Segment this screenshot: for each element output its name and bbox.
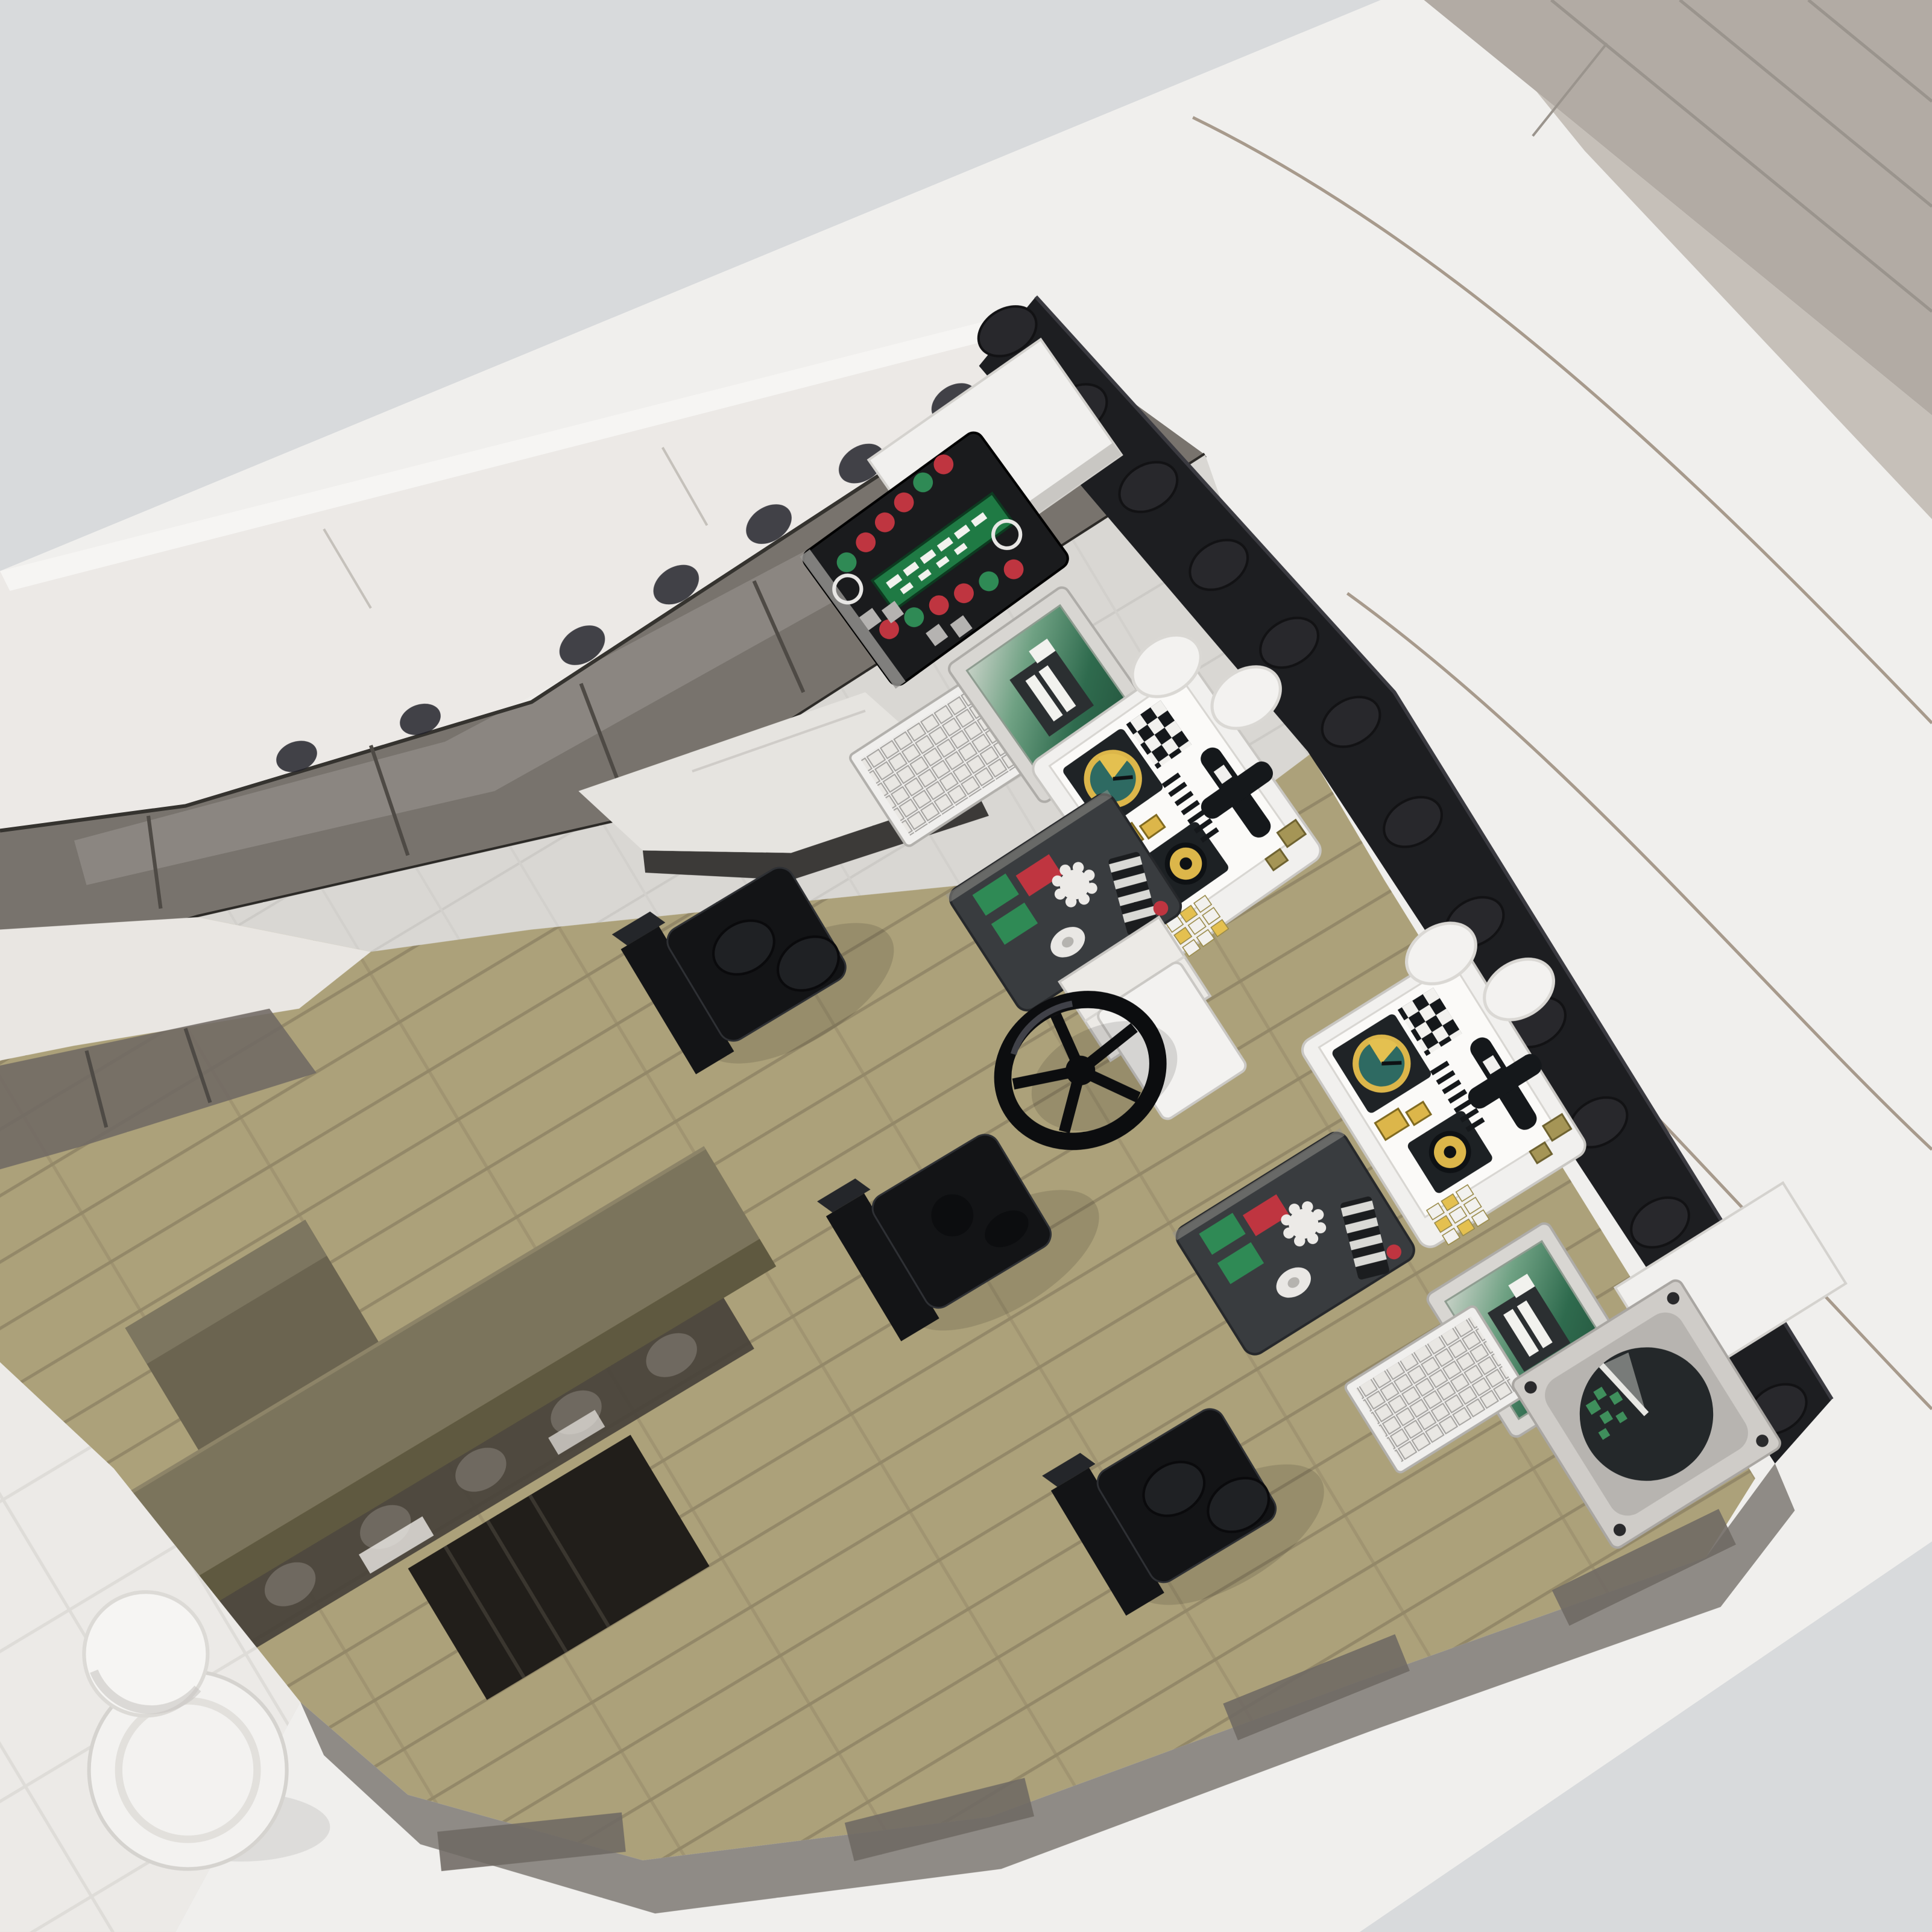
mini-keypad xyxy=(1166,895,1228,956)
indicator-light-panel xyxy=(800,429,1072,689)
gauge-needle xyxy=(1381,1055,1401,1072)
ladder-switches xyxy=(1162,772,1219,842)
red-switch xyxy=(1016,854,1062,896)
debris-white xyxy=(548,1410,605,1455)
crt-frame xyxy=(1425,1220,1635,1439)
gauge-needle xyxy=(1113,769,1133,787)
lego-bridge-render xyxy=(0,0,1932,1932)
wheel-spokes xyxy=(995,988,1161,1143)
keyboard-base xyxy=(1344,1305,1529,1474)
gray-buttons xyxy=(859,567,973,678)
ships-wheel xyxy=(980,968,1196,1166)
stud-behind-glass xyxy=(352,1496,419,1558)
stud xyxy=(552,617,612,674)
stud xyxy=(1740,1374,1816,1444)
windscreen-top-band xyxy=(0,312,1065,831)
bow-deck-group xyxy=(0,1362,330,1932)
plank-seams xyxy=(0,754,1755,1860)
black-stud-wall-group xyxy=(868,296,1846,1463)
roof-step-lower xyxy=(1536,92,1932,519)
seat-stud xyxy=(1134,1451,1214,1527)
chair-backrest xyxy=(621,926,734,1074)
gear-icon xyxy=(1272,1192,1336,1255)
khaki-button xyxy=(1530,1143,1552,1163)
box-seam xyxy=(1085,956,1184,1021)
radar-screen xyxy=(1555,1322,1738,1506)
oval-stud xyxy=(1045,921,1091,964)
port-inner-wall xyxy=(0,917,371,1061)
monitor-box xyxy=(1059,917,1210,1061)
panel-edge xyxy=(945,790,1112,902)
panel-body xyxy=(1172,1128,1419,1359)
console-body xyxy=(1298,944,1589,1251)
chart-desk-group xyxy=(578,692,989,880)
radar-blips xyxy=(1579,1381,1635,1440)
console-body xyxy=(1028,655,1325,964)
dial-gauge xyxy=(988,516,1026,554)
icon-bar xyxy=(1517,1301,1553,1348)
stair-step xyxy=(445,1546,524,1678)
chair-seat xyxy=(662,862,851,1046)
backdrop xyxy=(0,0,1932,1932)
lower-deck-glazing xyxy=(0,1009,317,1169)
stud-behind-glass xyxy=(638,1324,705,1386)
keyboard-keys xyxy=(860,682,1029,835)
deck-seam xyxy=(1347,593,1932,1149)
green-switch xyxy=(1217,1242,1264,1284)
radar-bezel xyxy=(1538,1305,1756,1523)
tile-edge xyxy=(941,443,1122,575)
wall-studs xyxy=(970,296,1816,1444)
roof-seam xyxy=(1533,43,1607,136)
icon-tab xyxy=(1508,1274,1535,1298)
chair-shadow xyxy=(678,895,916,1091)
telegraph-notch xyxy=(1483,1055,1501,1075)
telegraph-horizontal xyxy=(1197,757,1277,822)
radar-sweep-wedge xyxy=(1602,1350,1661,1421)
gauge-sector xyxy=(1368,1029,1401,1064)
wheel-highlight xyxy=(1003,1002,1081,1054)
stud xyxy=(1375,787,1451,857)
desk-under-shadow xyxy=(643,791,989,880)
gauge-sector xyxy=(1098,744,1132,779)
white-stud xyxy=(1473,947,1565,1032)
yellow-tag xyxy=(1110,823,1143,855)
deck-seam xyxy=(1193,118,1932,723)
helm-switch-panel-aft xyxy=(1172,1128,1419,1359)
panel-edge xyxy=(800,549,906,689)
seat-stud xyxy=(768,926,849,1001)
lower-deck-glazing xyxy=(207,1285,754,1654)
backrest-top xyxy=(817,1175,871,1216)
crt-monitor-aft xyxy=(1425,1220,1635,1439)
crt-monitor-fore xyxy=(946,585,1160,805)
seat-stud xyxy=(704,910,784,985)
white-tile-on-wall-aft xyxy=(1615,1183,1846,1389)
red-dot-light xyxy=(1384,1242,1404,1262)
roof-seam xyxy=(1680,0,1932,206)
keyboard-aft xyxy=(1344,1305,1529,1474)
glass-bottom-frame xyxy=(0,455,1205,976)
radar-sweep xyxy=(1602,1359,1647,1421)
telegraph-horizontal xyxy=(1465,1050,1545,1113)
glass-top-frame xyxy=(0,353,1065,830)
knob-center xyxy=(1177,855,1195,873)
lower-deck-structure xyxy=(90,1148,776,1700)
chair-backrest xyxy=(1051,1468,1164,1615)
render-canvas xyxy=(0,0,1932,1932)
yellow-tag xyxy=(1140,815,1165,838)
yellow-knob xyxy=(1424,1126,1476,1178)
windscreen-glass xyxy=(0,353,1205,976)
stud xyxy=(739,496,799,552)
glass-top-studs xyxy=(272,375,985,778)
stud-behind-glass xyxy=(257,1553,324,1615)
wheel-pedestal xyxy=(1095,960,1248,1122)
plank-floor xyxy=(0,754,1755,1860)
keyboard-keys xyxy=(1356,1317,1517,1462)
backrest-top xyxy=(1042,1449,1096,1491)
round-gauge xyxy=(1077,743,1149,815)
indicator-lights-bottom xyxy=(876,535,1028,663)
seat-stud xyxy=(1198,1467,1279,1542)
stair-step xyxy=(487,1521,566,1652)
stud xyxy=(272,736,321,778)
chart-desk xyxy=(578,692,976,853)
captains-chair-1 xyxy=(612,812,916,1102)
wheel-shadow xyxy=(1014,1000,1195,1152)
stud xyxy=(924,375,985,431)
stud xyxy=(1437,887,1513,957)
stud xyxy=(1684,1287,1760,1357)
striped-lever xyxy=(1108,851,1159,936)
keyboard-fore xyxy=(848,671,1040,848)
white-box xyxy=(1059,917,1210,1061)
white-tile-on-wall-fore xyxy=(868,339,1121,575)
yellow-tag xyxy=(1375,1109,1409,1140)
chair-seat xyxy=(867,1129,1056,1313)
bollard-ring xyxy=(119,1701,257,1840)
wheel-hub xyxy=(1061,1051,1100,1090)
stud xyxy=(1313,687,1389,757)
aft-roof-steps xyxy=(1424,0,1932,519)
deck-seam xyxy=(1502,958,1932,1409)
striped-lever xyxy=(1340,1196,1390,1280)
checker-buttons xyxy=(1126,700,1192,769)
yellow-knob xyxy=(1160,838,1212,889)
display-segments xyxy=(886,512,994,598)
screen-window-icon xyxy=(1009,649,1094,737)
bow-tile-deck xyxy=(0,1362,300,1932)
desk-seam xyxy=(692,711,865,771)
radar-display xyxy=(1510,1278,1782,1550)
knob-plate xyxy=(1406,1109,1494,1195)
ship-hull-decks xyxy=(0,0,1932,1932)
khaki-button xyxy=(1543,1114,1571,1141)
olive-crate xyxy=(125,1220,382,1455)
telegraph-notch xyxy=(1214,765,1233,784)
stud xyxy=(1251,608,1327,678)
knob-center xyxy=(1442,1143,1459,1160)
captains-chair-2 xyxy=(817,1079,1121,1369)
yellow-tag xyxy=(1406,1102,1431,1125)
radar-screws xyxy=(1522,1290,1770,1538)
panel-edge xyxy=(1172,1128,1345,1240)
backrest-top xyxy=(612,908,666,949)
dial-gauge xyxy=(829,570,867,608)
crt-frame xyxy=(946,585,1160,805)
port-lower-windows xyxy=(0,1009,317,1169)
stud xyxy=(1040,374,1116,444)
chair-shadow xyxy=(1109,1436,1346,1633)
white-stud xyxy=(1120,622,1212,709)
bench-edge-highlight xyxy=(90,1148,705,1517)
white-stud xyxy=(1395,911,1487,996)
roof-seam xyxy=(1808,0,1932,101)
stud xyxy=(970,296,1046,366)
stud xyxy=(832,435,892,491)
ladder-switches xyxy=(1430,1061,1485,1132)
gear-icon xyxy=(1043,853,1106,917)
windscreen-glass-group xyxy=(0,353,1205,976)
stud-behind-glass xyxy=(543,1381,610,1444)
telegraph-vertical xyxy=(1466,1034,1541,1134)
oval-stud-hole xyxy=(1286,1275,1301,1290)
glass-panel xyxy=(1552,1509,1736,1626)
glass-reflection xyxy=(74,519,915,885)
radar-plate xyxy=(1510,1278,1782,1550)
round-gauge xyxy=(1346,1028,1418,1099)
stud xyxy=(1498,987,1574,1057)
white-stud xyxy=(1200,654,1292,741)
green-switch xyxy=(1199,1213,1245,1255)
green-switch xyxy=(991,903,1038,945)
chair-seat xyxy=(1092,1404,1281,1588)
white-tile xyxy=(868,339,1121,575)
glazing-band xyxy=(207,1285,754,1654)
window-mullion xyxy=(86,1050,106,1127)
red-switch xyxy=(1243,1194,1289,1236)
green-bar-display xyxy=(872,493,1014,610)
red-dot-light xyxy=(1151,898,1171,918)
stair-step xyxy=(530,1495,609,1627)
screen-window-icon xyxy=(1488,1284,1570,1372)
panel-body xyxy=(945,790,1185,1015)
stud xyxy=(1181,530,1257,600)
telegraph-vertical xyxy=(1197,743,1275,841)
crt-screen xyxy=(967,605,1139,784)
bench-front-face xyxy=(145,1239,777,1635)
debris-white xyxy=(359,1517,434,1574)
stud xyxy=(1622,1187,1698,1257)
plank-floor-group xyxy=(0,754,1755,1860)
khaki-button xyxy=(1266,849,1287,870)
lower-deck-bench xyxy=(90,1148,776,1635)
keyboard-base xyxy=(848,671,1040,848)
crate-body xyxy=(125,1220,382,1455)
glass-panel xyxy=(1223,1634,1410,1740)
binoculars-on-seat xyxy=(924,1187,982,1245)
crate-top xyxy=(125,1220,327,1364)
band-seam xyxy=(324,529,371,608)
gauge-plate xyxy=(1061,727,1164,830)
oval-stud-hole xyxy=(1060,935,1076,950)
chair-shadow xyxy=(884,1162,1122,1359)
white-tile xyxy=(1615,1183,1846,1389)
stair-hole xyxy=(408,1435,710,1700)
windscreen-top-highlight xyxy=(0,312,1034,591)
stern-railing xyxy=(300,1463,1795,1913)
stud xyxy=(646,557,706,613)
stairwell-opening xyxy=(408,1435,710,1700)
icon-tab xyxy=(1029,639,1055,663)
bridge-tile-floor-group xyxy=(198,455,1310,964)
mini-keypad xyxy=(1427,1185,1489,1245)
tile-seams xyxy=(198,455,1310,964)
glass-mullions xyxy=(148,470,976,909)
green-switch xyxy=(973,874,1019,916)
crt-screen xyxy=(1445,1241,1615,1419)
helm-switch-panel-fore xyxy=(945,790,1185,1015)
icon-bar xyxy=(1503,1309,1539,1357)
roof-step-field xyxy=(1424,0,1932,415)
sticker-panel xyxy=(1319,964,1559,1217)
captains-chair-3 xyxy=(1042,1354,1346,1643)
gauge-console-fore xyxy=(1011,595,1379,969)
bow-bollard-base xyxy=(89,1671,287,1869)
black-stud-wall xyxy=(979,297,1832,1463)
checker-buttons xyxy=(1398,988,1462,1056)
band-seam xyxy=(663,447,707,525)
bollard-shadow xyxy=(152,1792,330,1861)
gauge-console-aft xyxy=(1282,886,1646,1257)
knob-plate xyxy=(1141,820,1230,907)
knob-shading xyxy=(94,1671,198,1709)
panel-body xyxy=(800,429,1072,689)
wheel-rim xyxy=(980,975,1181,1166)
stud xyxy=(1110,452,1186,522)
deck-panel-seams xyxy=(1193,118,1932,1409)
oval-stud xyxy=(1271,1261,1316,1304)
chair-backrest xyxy=(826,1193,939,1341)
stern-railing-group xyxy=(300,1463,1795,1913)
railing-glass-panels xyxy=(437,1509,1736,1871)
glass-panel xyxy=(845,1778,1034,1861)
pedestal-body xyxy=(1095,960,1248,1122)
indicator-lights-top xyxy=(819,450,970,576)
gauge-plate xyxy=(1331,1012,1433,1114)
wall-top-highlight xyxy=(1036,297,1832,1400)
sticker-panel xyxy=(1050,675,1294,930)
stud-behind-glass xyxy=(447,1439,514,1501)
bench-top xyxy=(90,1148,760,1608)
bow-tile-seams xyxy=(0,1362,300,1932)
khaki-button xyxy=(1277,820,1305,847)
window-mullion xyxy=(185,1029,210,1103)
bow-bollard-knob xyxy=(84,1592,207,1716)
bridge-tile-floor xyxy=(198,455,1310,964)
icon-bar xyxy=(1038,665,1076,712)
stud xyxy=(1561,1087,1637,1157)
roof-seam xyxy=(1552,0,1932,312)
icon-bar xyxy=(1026,675,1063,722)
item-on-seat xyxy=(978,1203,1035,1255)
glass-panel xyxy=(437,1813,626,1871)
stud xyxy=(396,698,445,740)
